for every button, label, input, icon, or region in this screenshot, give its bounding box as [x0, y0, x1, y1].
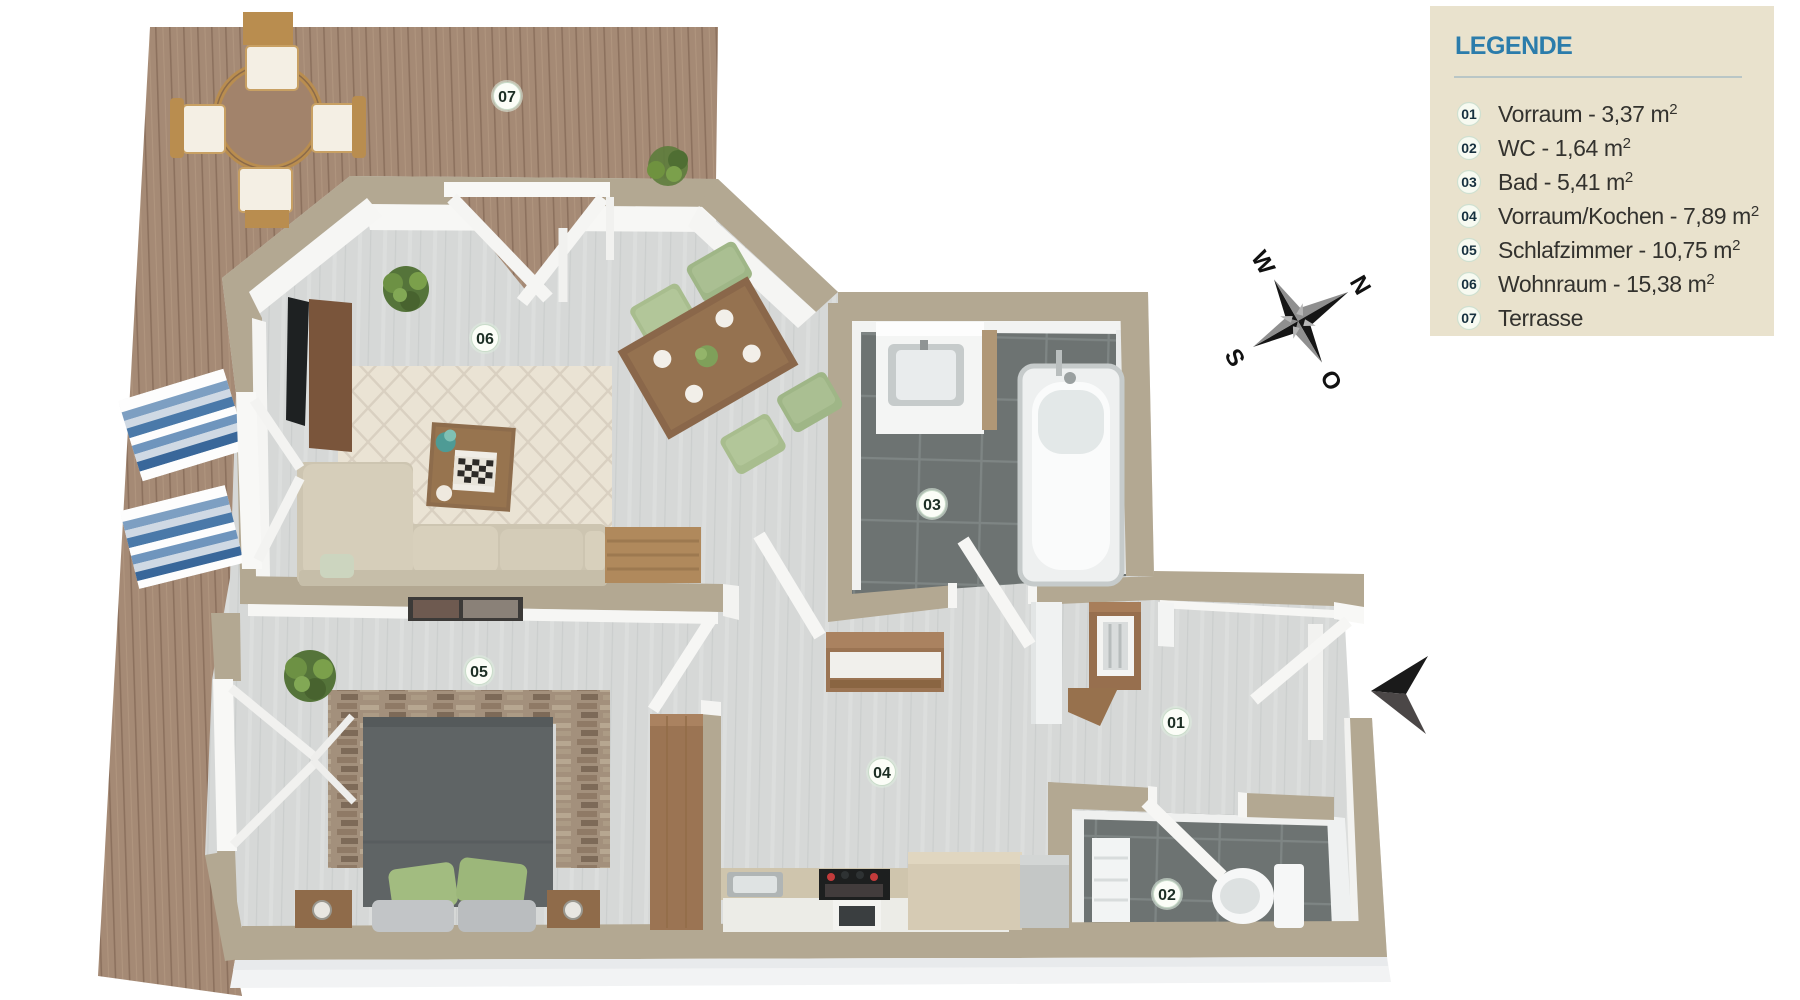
svg-text:04: 04 — [873, 765, 891, 782]
svg-text:Schlafzimmer - 10,75 m2: Schlafzimmer - 10,75 m2 — [1498, 237, 1740, 263]
svg-text:Terrasse: Terrasse — [1498, 305, 1583, 331]
svg-text:WC - 1,64 m2: WC - 1,64 m2 — [1498, 135, 1631, 161]
svg-text:06: 06 — [1461, 276, 1477, 292]
svg-text:07: 07 — [498, 89, 516, 106]
svg-text:03: 03 — [923, 497, 941, 514]
svg-text:07: 07 — [1461, 310, 1477, 326]
svg-text:Vorraum - 3,37 m2: Vorraum - 3,37 m2 — [1498, 101, 1677, 127]
svg-text:Bad - 5,41 m2: Bad - 5,41 m2 — [1498, 169, 1633, 195]
svg-text:04: 04 — [1461, 208, 1477, 224]
svg-text:Wohnraum - 15,38 m2: Wohnraum - 15,38 m2 — [1498, 271, 1714, 297]
svg-text:02: 02 — [1158, 887, 1176, 904]
svg-text:03: 03 — [1461, 174, 1477, 190]
svg-text:05: 05 — [470, 664, 488, 681]
svg-text:01: 01 — [1461, 106, 1477, 122]
svg-text:01: 01 — [1167, 715, 1185, 732]
svg-text:06: 06 — [476, 331, 494, 348]
svg-text:05: 05 — [1461, 242, 1477, 258]
svg-text:02: 02 — [1461, 140, 1477, 156]
svg-text:Vorraum/Kochen - 7,89 m2: Vorraum/Kochen - 7,89 m2 — [1498, 203, 1759, 229]
svg-text:LEGENDE: LEGENDE — [1455, 32, 1572, 60]
